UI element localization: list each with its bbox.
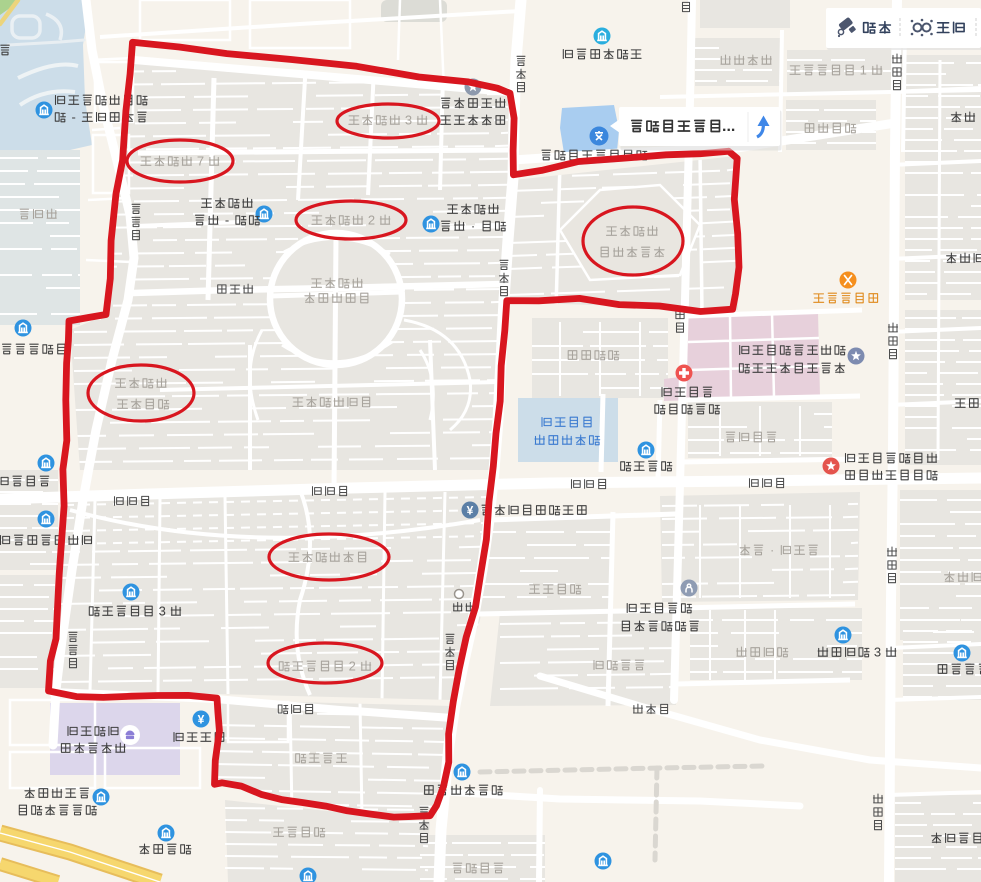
svg-text:3: 3 [874,644,881,659]
svg-text:-: - [72,109,76,124]
svg-text:3: 3 [159,603,166,618]
svg-text:1: 1 [860,62,867,77]
svg-text:·: · [471,218,475,233]
svg-text:·: · [770,542,774,557]
svg-text:¥: ¥ [467,504,474,518]
svg-text:2: 2 [349,658,356,673]
svg-text:2: 2 [368,212,375,227]
svg-text:...: ... [722,118,735,135]
svg-text:¥: ¥ [198,713,205,727]
svg-text:3: 3 [405,112,412,127]
svg-text:-: - [225,212,229,227]
svg-text:7: 7 [197,153,204,168]
